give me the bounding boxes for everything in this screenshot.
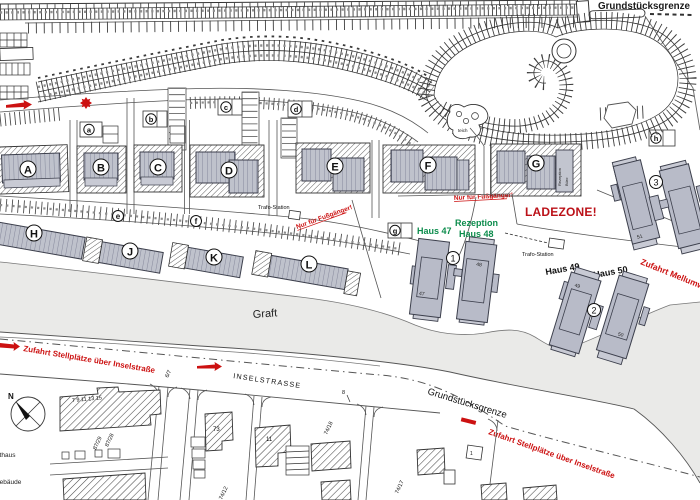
svg-text:3: 3 bbox=[653, 178, 658, 188]
svg-text:73: 73 bbox=[213, 427, 220, 433]
svg-text:Trafo-Station: Trafo-Station bbox=[258, 205, 290, 211]
svg-text:L: L bbox=[306, 260, 313, 272]
svg-text:c: c bbox=[224, 103, 228, 112]
svg-text:2: 2 bbox=[591, 306, 596, 316]
svg-text:C: C bbox=[154, 163, 162, 175]
svg-text:D: D bbox=[225, 166, 233, 178]
svg-text:47: 47 bbox=[419, 291, 425, 298]
svg-text:1: 1 bbox=[450, 254, 455, 264]
svg-text:B: B bbox=[97, 163, 105, 175]
svg-text:A: A bbox=[24, 165, 32, 177]
svg-text:Graft: Graft bbox=[252, 307, 277, 321]
svg-text:48: 48 bbox=[476, 262, 482, 269]
svg-text:Haus 47: Haus 47 bbox=[417, 226, 452, 236]
svg-text:d: d bbox=[294, 105, 299, 114]
svg-text:Rezeption: Rezeption bbox=[557, 168, 562, 186]
svg-text:teich: teich bbox=[458, 128, 468, 133]
svg-text:J: J bbox=[127, 247, 133, 259]
svg-text:G: G bbox=[532, 159, 541, 171]
svg-text:e: e bbox=[116, 212, 121, 221]
svg-text:gebäude: gebäude bbox=[0, 479, 22, 486]
svg-text:E: E bbox=[331, 162, 338, 174]
svg-text:K: K bbox=[210, 253, 218, 265]
svg-text:b: b bbox=[149, 115, 154, 124]
svg-text:Trafo-Station: Trafo-Station bbox=[522, 252, 554, 258]
svg-text:f: f bbox=[195, 217, 198, 226]
svg-text:nthaus: nthaus bbox=[0, 452, 16, 459]
svg-text:8: 8 bbox=[342, 390, 345, 396]
svg-text:Grundstücksgrenze: Grundstücksgrenze bbox=[598, 1, 691, 12]
svg-text:11: 11 bbox=[266, 437, 273, 443]
svg-text:g: g bbox=[393, 227, 398, 236]
svg-text:H: H bbox=[30, 229, 38, 241]
svg-text:F: F bbox=[425, 161, 432, 173]
svg-text:LADEZONE!: LADEZONE! bbox=[525, 205, 597, 219]
svg-text:1: 1 bbox=[470, 451, 473, 457]
svg-text:Büro: Büro bbox=[564, 177, 569, 186]
svg-text:N: N bbox=[8, 392, 14, 401]
svg-text:Rezeption: Rezeption bbox=[455, 218, 498, 228]
svg-text:h: h bbox=[654, 134, 659, 143]
